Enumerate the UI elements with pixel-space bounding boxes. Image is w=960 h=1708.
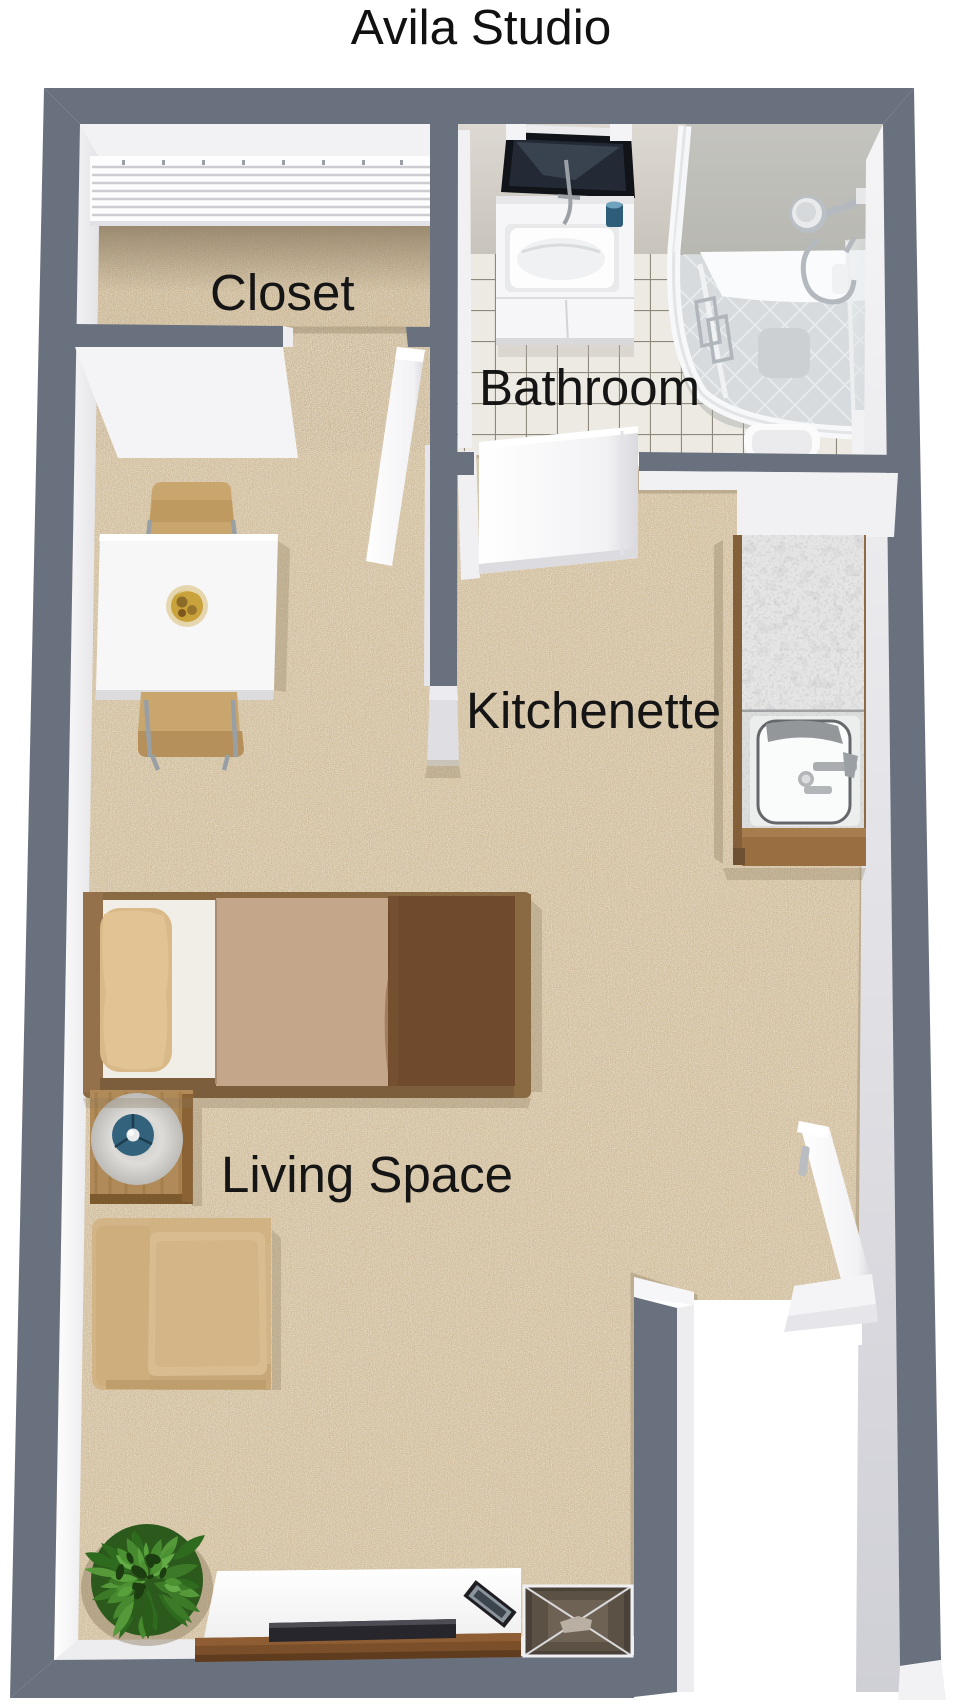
svg-text:Living Space: Living Space — [221, 1146, 513, 1203]
svg-text:Kitchenette: Kitchenette — [466, 682, 721, 739]
svg-text:Bathroom: Bathroom — [479, 359, 700, 416]
svg-text:Avila Studio: Avila Studio — [351, 0, 612, 55]
svg-text:Closet: Closet — [210, 264, 355, 321]
